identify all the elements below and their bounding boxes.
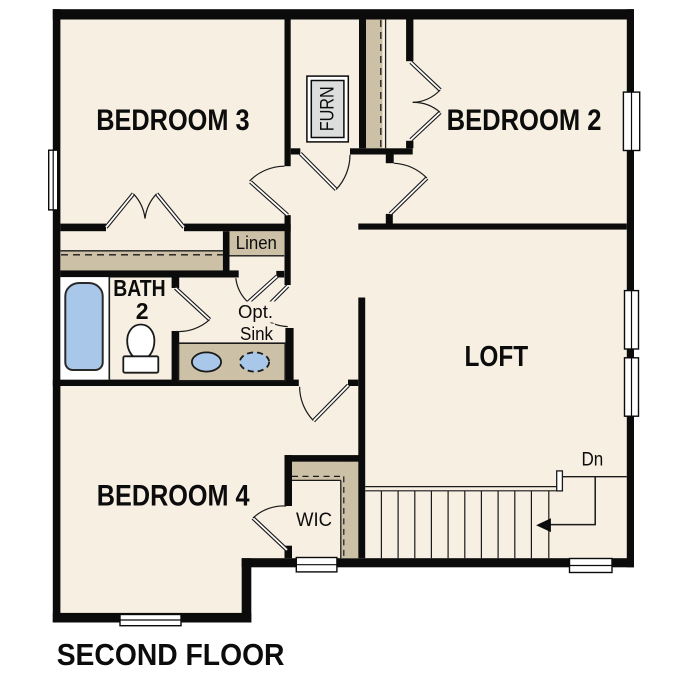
svg-text:SECOND FLOOR: SECOND FLOOR xyxy=(57,637,285,672)
svg-text:BEDROOM 4: BEDROOM 4 xyxy=(97,479,250,512)
svg-text:Linen: Linen xyxy=(236,233,277,253)
svg-text:FURN: FURN xyxy=(317,86,339,131)
svg-text:WIC: WIC xyxy=(296,509,332,531)
svg-text:LOFT: LOFT xyxy=(465,341,529,373)
svg-text:BEDROOM 3: BEDROOM 3 xyxy=(96,104,249,137)
svg-text:Sink: Sink xyxy=(240,324,274,344)
svg-text:Dn: Dn xyxy=(582,449,604,471)
svg-text:Opt.: Opt. xyxy=(238,302,273,322)
svg-text:BEDROOM 2: BEDROOM 2 xyxy=(447,104,602,137)
svg-text:2: 2 xyxy=(136,298,149,324)
